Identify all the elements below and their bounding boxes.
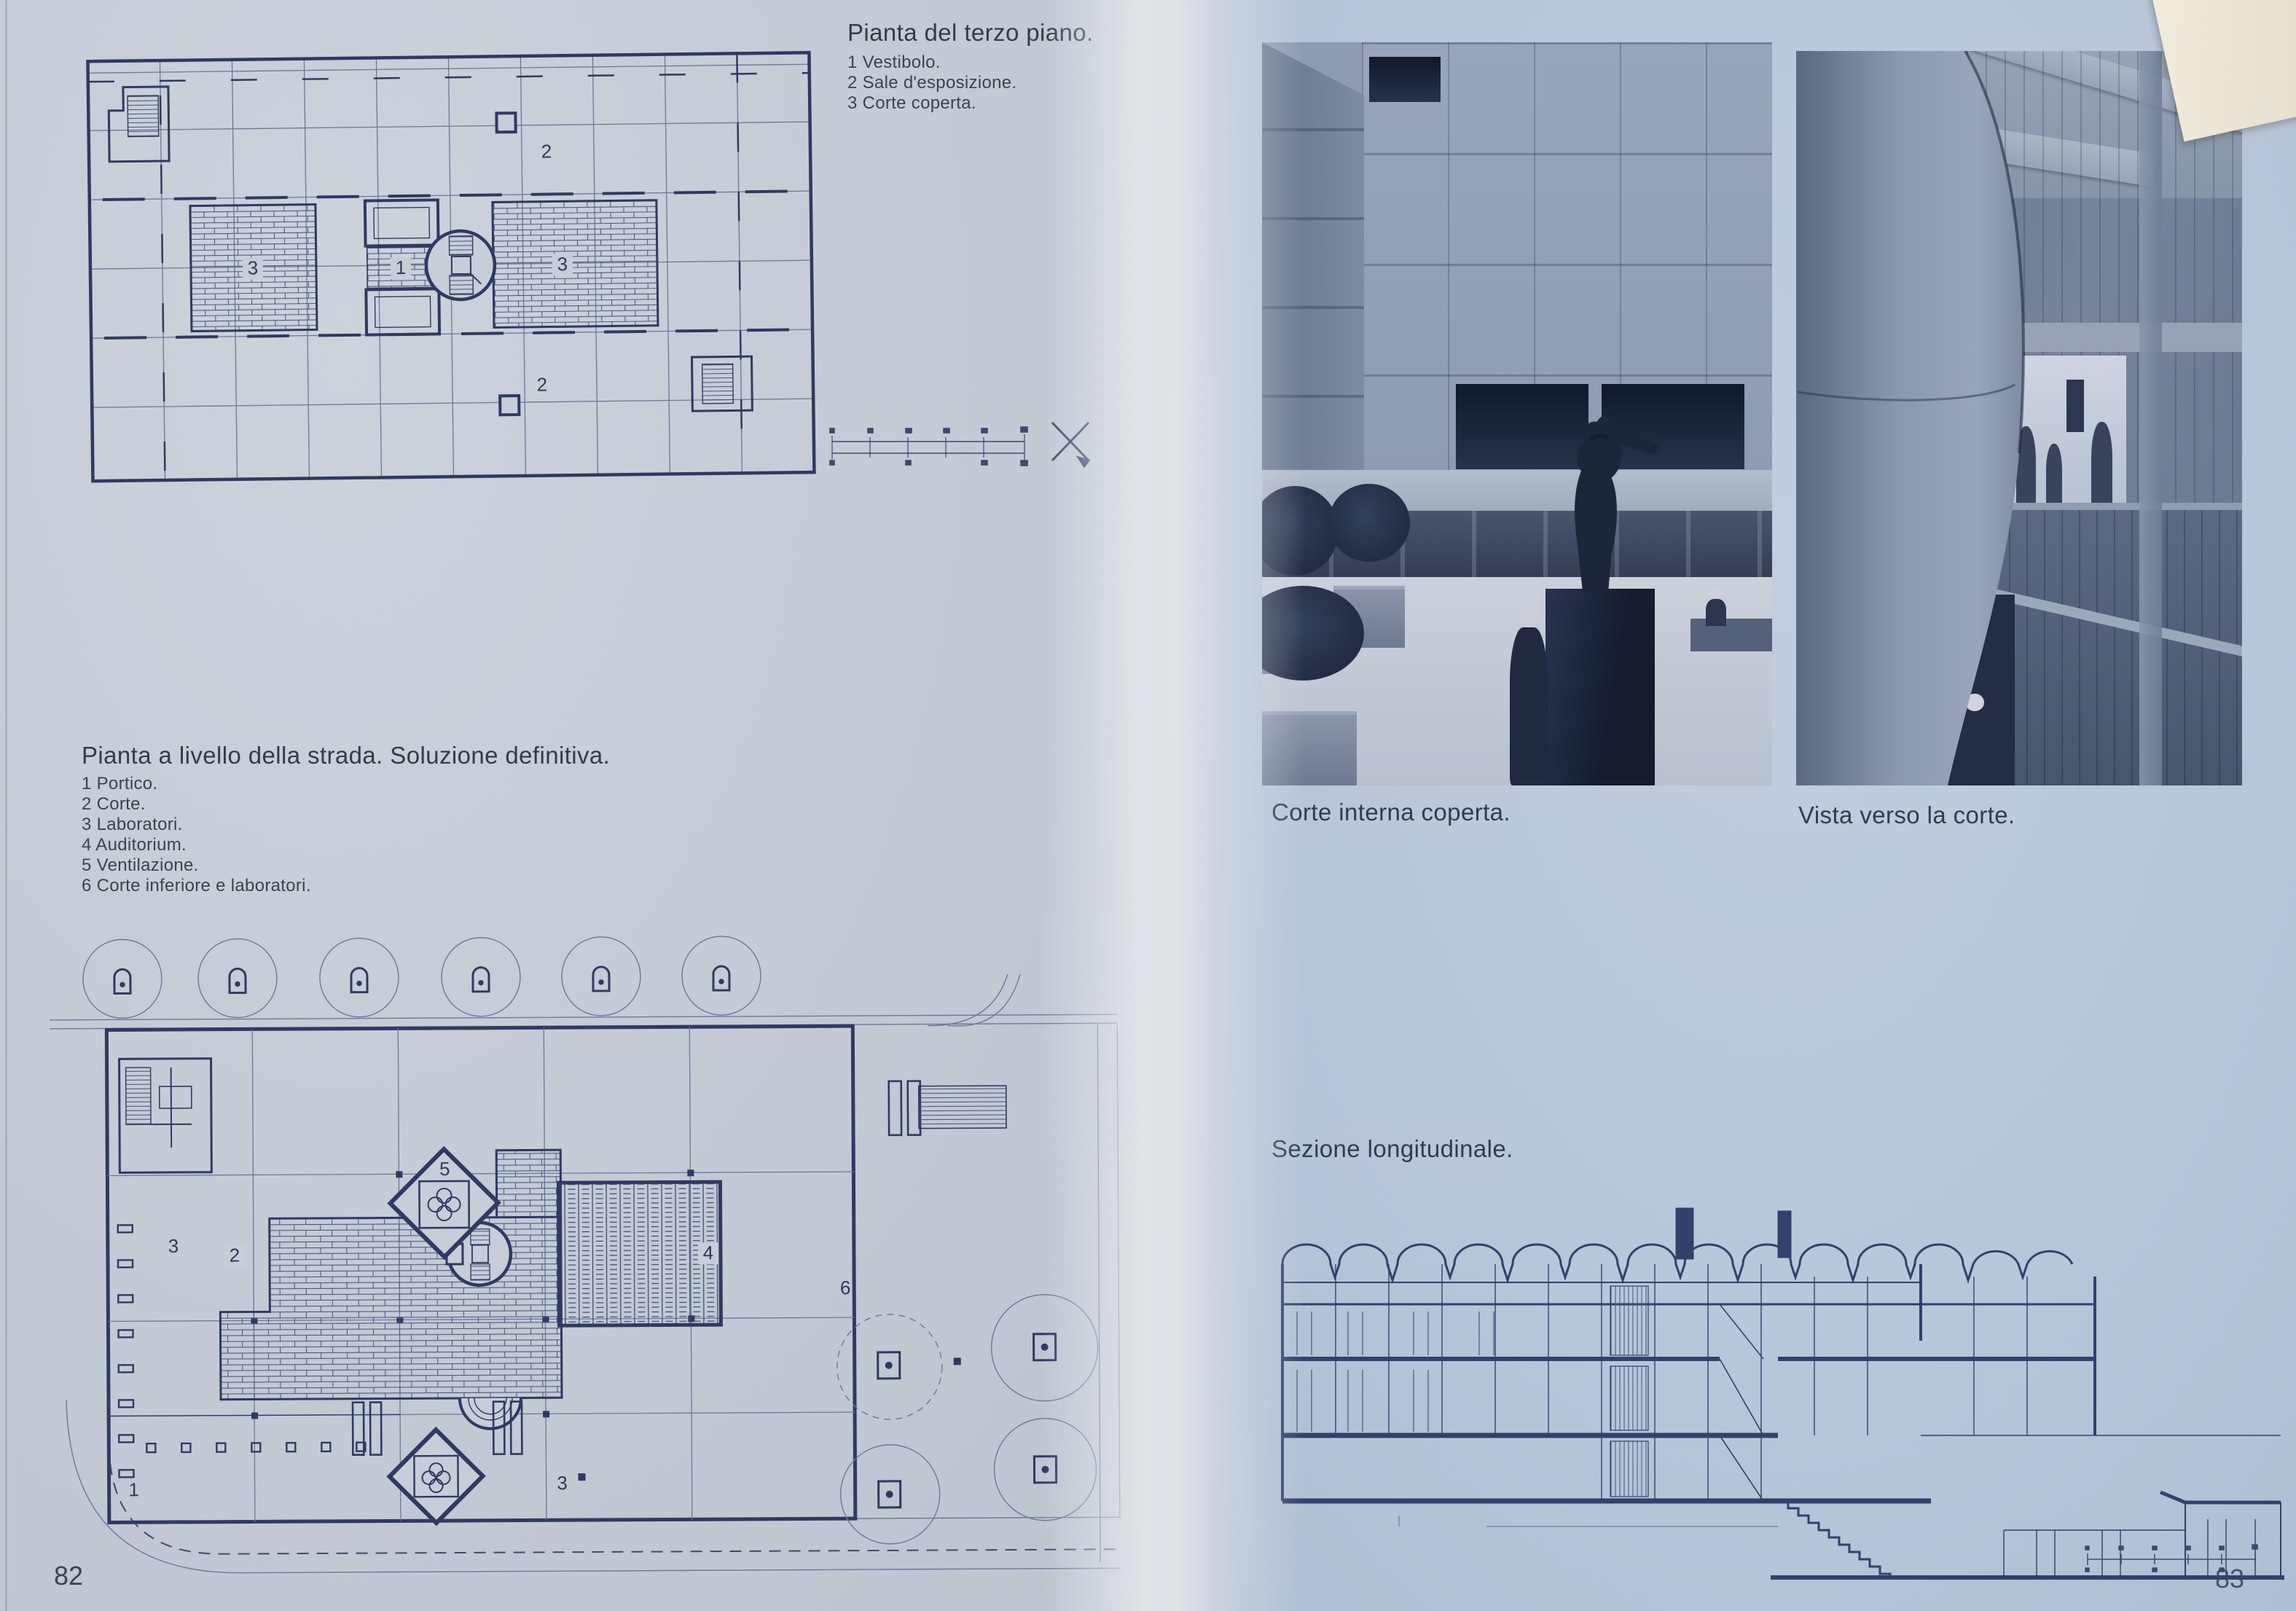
- plan3-label-sale-bottom: 2: [537, 374, 548, 396]
- background-bench: [1690, 619, 1772, 652]
- column-dot: [579, 1473, 586, 1481]
- legend-item: 2 Corte.: [82, 794, 311, 815]
- page-number-right: 83: [2215, 1564, 2244, 1594]
- legend-item: 6 Corte inferiore e laboratori.: [82, 876, 311, 896]
- visitor-body: [1510, 627, 1548, 785]
- book-spread: 3 1 3 2 2: [0, 0, 2296, 1611]
- visitor-silhouette: [1510, 600, 1548, 785]
- plan3-label-sale-top: 2: [541, 140, 552, 162]
- legend-item: 1 Portico.: [82, 774, 311, 794]
- label-ventilazione: 5: [439, 1158, 450, 1180]
- plan3-legend: 1 Vestibolo. 2 Sale d'esposizione. 3 Cor…: [847, 52, 1016, 114]
- far-person-silhouette: [1706, 589, 1726, 626]
- page-edge-crease: [5, 0, 7, 1611]
- photo-toward-court: [1796, 51, 2242, 785]
- concrete-cylinder: [1796, 51, 2242, 785]
- north-arrow-mark: [1052, 423, 1089, 466]
- label-portico: 1: [128, 1478, 139, 1500]
- street-trees: [83, 936, 761, 1019]
- page-left: 3 1 3 2 2: [0, 0, 1151, 1611]
- far-person-body: [1706, 599, 1726, 626]
- plan3-scalebar: [822, 414, 1106, 494]
- planter: [1262, 659, 1364, 785]
- plan3-title: Pianta del terzo piano.: [847, 19, 1094, 47]
- label-corte: 2: [230, 1244, 240, 1266]
- plan3-column-top: [496, 113, 515, 132]
- legend-item: 5 Ventilazione.: [82, 855, 311, 876]
- plan3-label-vestibule: 1: [396, 256, 407, 278]
- planter-box: [1262, 711, 1357, 785]
- section-drawing: [1268, 1195, 2288, 1603]
- auditorium: [558, 1182, 721, 1325]
- stair-block-topleft: [119, 1059, 212, 1173]
- plan3-column-bottom: [500, 396, 519, 415]
- court-trees: [836, 1294, 1099, 1544]
- court-paving: [219, 1150, 562, 1399]
- statue-silhouette: [1522, 391, 1675, 600]
- label-laboratori-bottom: 3: [557, 1472, 568, 1494]
- entry-stair: [919, 1086, 1006, 1129]
- caption-photo-right: Vista verso la corte.: [1798, 801, 2015, 829]
- legend-item: 3 Corte coperta.: [847, 93, 1016, 114]
- vent-diamond-bottom: [389, 1430, 483, 1524]
- label-auditorium: 4: [703, 1242, 714, 1263]
- plan3-label-court-left: 3: [248, 256, 259, 278]
- legend-item: 4 Auditorium.: [82, 835, 311, 855]
- visitor-head: [1521, 600, 1536, 627]
- court-window-band: [1369, 57, 1441, 101]
- plan-street-level-drawing: 3 2 4: [50, 928, 1139, 1594]
- plan-street-title: Pianta a livello della strada. Soluzione…: [82, 742, 610, 769]
- planter-foliage: [1328, 484, 1410, 562]
- caption-photo-left: Corte interna coperta.: [1272, 799, 1511, 826]
- photo-inner-court: [1262, 42, 1772, 785]
- caption-section: Sezione longitudinale.: [1272, 1135, 1513, 1163]
- statue-pedestal: [1545, 589, 1656, 785]
- plan3-label-court-right: 3: [557, 253, 568, 275]
- legend-item: 2 Sale d'esposizione.: [847, 73, 1016, 93]
- far-person-head: [1712, 589, 1720, 599]
- plan-street-legend: 1 Portico. 2 Corte. 3 Laboratori. 4 Audi…: [82, 774, 311, 896]
- site-dashed-line: [109, 1438, 1120, 1554]
- legend-item: 3 Laboratori.: [82, 815, 311, 835]
- page-right: Corte interna coperta. Vista verso la co…: [1151, 0, 2296, 1611]
- plan-third-floor-drawing: 3 1 3 2 2: [79, 29, 846, 511]
- page-number-left: 82: [54, 1561, 83, 1591]
- street-tree-arches: [114, 966, 729, 993]
- plan3-stair-drum: [426, 230, 495, 299]
- label-corte-inferiore: 6: [840, 1277, 851, 1298]
- label-laboratori-top: 3: [168, 1235, 179, 1257]
- legend-item: 1 Vestibolo.: [847, 52, 1016, 73]
- plan3-court-right: [493, 200, 658, 328]
